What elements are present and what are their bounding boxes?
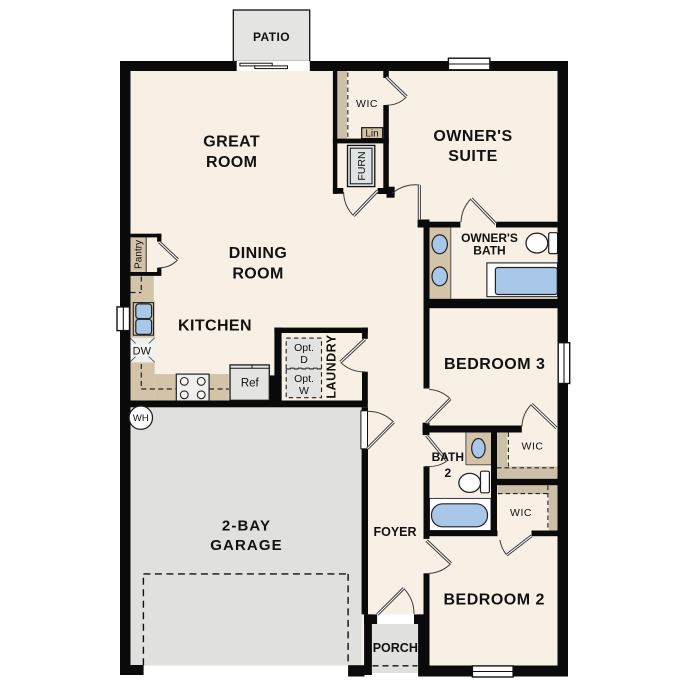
svg-text:LAUNDRY: LAUNDRY	[325, 334, 339, 398]
svg-text:Lin: Lin	[365, 129, 378, 140]
svg-text:Opt.: Opt.	[294, 373, 314, 385]
svg-text:W: W	[299, 385, 309, 397]
svg-text:ROOM: ROOM	[232, 265, 283, 282]
svg-text:BATH: BATH	[473, 244, 505, 258]
svg-text:WIC: WIC	[356, 98, 378, 110]
svg-text:ROOM: ROOM	[206, 154, 257, 171]
svg-text:DW: DW	[133, 345, 152, 357]
svg-text:FOYER: FOYER	[373, 525, 416, 539]
svg-text:WH: WH	[133, 413, 149, 424]
svg-text:FURN: FURN	[356, 151, 368, 180]
svg-text:PORCH: PORCH	[373, 641, 418, 655]
svg-text:Ref: Ref	[241, 378, 260, 390]
svg-text:DINING: DINING	[229, 245, 287, 262]
svg-text:Pantry: Pantry	[134, 240, 145, 269]
svg-text:OWNER'S: OWNER'S	[433, 128, 512, 145]
svg-text:2: 2	[444, 466, 451, 480]
svg-text:Opt.: Opt.	[294, 342, 314, 354]
svg-text:GARAGE: GARAGE	[210, 537, 282, 554]
svg-text:BEDROOM 3: BEDROOM 3	[444, 356, 545, 373]
svg-text:SUITE: SUITE	[448, 148, 498, 165]
svg-text:BEDROOM 2: BEDROOM 2	[443, 592, 544, 609]
svg-text:D: D	[300, 354, 308, 366]
svg-text:2-BAY: 2-BAY	[222, 518, 271, 535]
svg-text:KITCHEN: KITCHEN	[178, 318, 252, 335]
svg-text:BATH: BATH	[432, 450, 464, 464]
svg-text:PATIO: PATIO	[253, 30, 290, 44]
svg-text:WIC: WIC	[522, 441, 544, 453]
svg-text:WIC: WIC	[510, 507, 532, 519]
svg-text:GREAT: GREAT	[203, 134, 260, 151]
